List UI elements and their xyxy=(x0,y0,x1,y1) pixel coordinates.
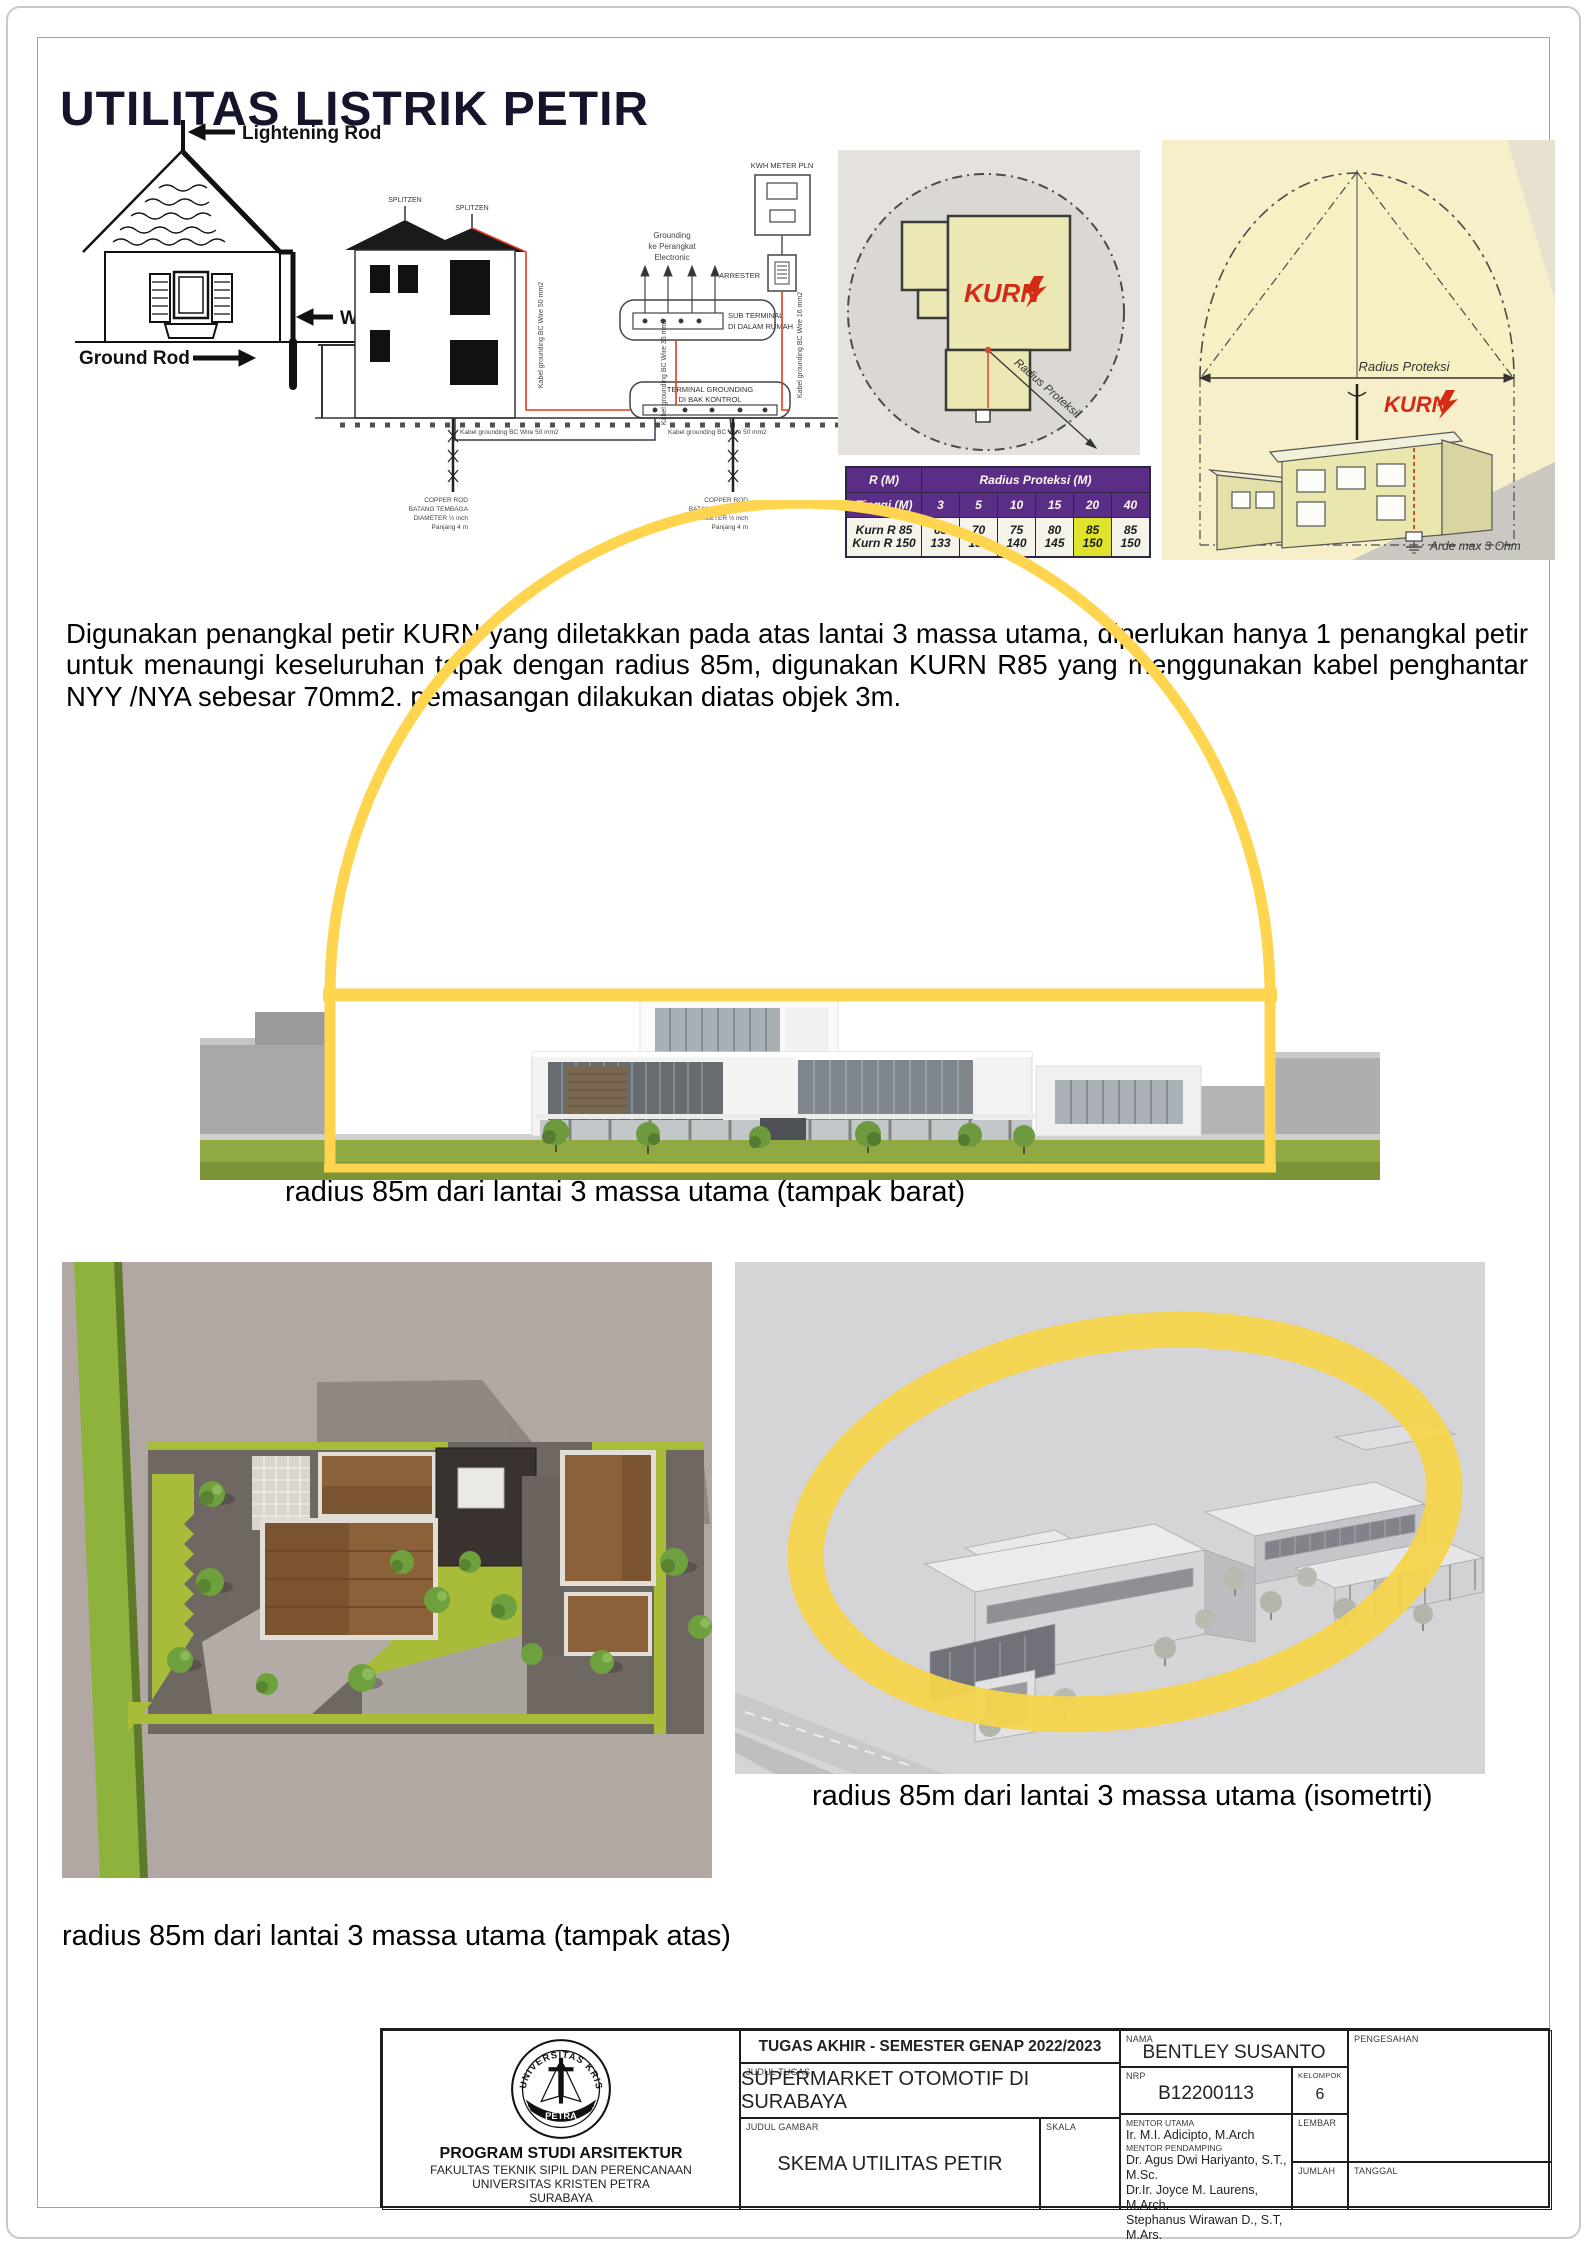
mentor-pendamping-label: MENTOR PENDAMPING xyxy=(1126,2143,1287,2153)
tanggal-cell: TANGGAL xyxy=(1348,2162,1552,2210)
nrp-label: NRP xyxy=(1126,2071,1146,2081)
table-radius-header: Radius Proteksi (M) xyxy=(922,468,1149,492)
kwh-meter xyxy=(755,175,810,235)
nama-cell: NAMA BENTLEY SUSANTO xyxy=(1120,2030,1348,2067)
presentation-board: UTILITAS LISTRIK PETIR xyxy=(0,0,1587,2245)
main-roof-building xyxy=(260,1518,438,1640)
kelompok-label: KELOMPOK xyxy=(1298,2071,1342,2080)
grounding-electronic-2: ke Perangkat xyxy=(648,242,696,251)
radius-side-diagram: Radius Proteksi KURN xyxy=(1162,140,1555,560)
jumlah-label: JUMLAH xyxy=(1298,2166,1335,2176)
caption-west-elevation: radius 85m dari lantai 3 massa utama (ta… xyxy=(285,1176,965,1209)
dark-flat-roof-mass xyxy=(436,1448,536,1566)
skala-cell: SKALA xyxy=(1040,2118,1120,2210)
university-logo: UNIVERSITAS KRISTEN PETRA xyxy=(509,2037,613,2141)
site-top-view-render xyxy=(62,1262,712,1878)
pengesahan-cell: PENGESAHAN xyxy=(1348,2030,1552,2162)
universitas: UNIVERSITAS KRISTEN PETRA xyxy=(472,2177,650,2191)
grass-strip xyxy=(200,1134,1380,1180)
skala-label: SKALA xyxy=(1046,2122,1076,2132)
titleblock-header-cell: TUGAS AKHIR - SEMESTER GENAP 2022/2023 xyxy=(740,2030,1120,2063)
table-r-header: R (M) xyxy=(847,468,921,492)
grounding-electronic-3: Electronic xyxy=(654,253,689,262)
main-building-elevation xyxy=(532,994,1201,1140)
radius-plan-diagram: KURN Radius Proteksi xyxy=(838,150,1140,455)
mentor-pendamping-name: Dr. Agus Dwi Hariyanto, S.T., M.Sc. xyxy=(1126,2153,1287,2183)
radius-proteksi-label-side: Radius Proteksi xyxy=(1358,359,1450,374)
arrester xyxy=(768,235,796,291)
title-block: UNIVERSITAS KRISTEN PETRA PROGRAM STUDI … xyxy=(380,2028,1550,2208)
cable-rod-right-label: Kabel grounding BC Wire 50 mm2 xyxy=(668,429,767,436)
jumlah-cell: JUMLAH xyxy=(1292,2162,1348,2210)
sub-terminal-label-2: DI DALAM RUMAH xyxy=(728,322,793,331)
fakultas: FAKULTAS TEKNIK SIPIL DAN PERENCANAAN xyxy=(430,2163,692,2177)
nama-label: NAMA xyxy=(1126,2034,1153,2044)
grounding-electronic-1: Grounding xyxy=(653,231,690,240)
pengesahan-label: PENGESAHAN xyxy=(1354,2034,1419,2044)
splitzen-right-label: SPLITZEN xyxy=(455,205,488,212)
mentor-pendamping-name: Stephanus Wirawan D., S.T, M.Ars. xyxy=(1126,2213,1287,2243)
tanggal-label: TANGGAL xyxy=(1354,2166,1398,2176)
kota: SURABAYA xyxy=(529,2191,593,2205)
right-roof-buildings xyxy=(522,1450,656,1656)
judul-tugas-label: JUDUL TUGAS xyxy=(746,2067,810,2077)
kelompok-cell: KELOMPOK 6 xyxy=(1292,2067,1348,2114)
ground-rod-label: Ground Rod xyxy=(79,348,190,369)
lembar-cell: LEMBAR xyxy=(1292,2114,1348,2162)
sub-terminal-label-1: SUB TERMINAL xyxy=(728,311,783,320)
lembar-label: LEMBAR xyxy=(1298,2118,1336,2128)
west-elevation-radius-view xyxy=(200,500,1380,1180)
mentor-pendamping-name: Dr.Ir. Joyce M. Laurens, M.Arch. xyxy=(1126,2183,1287,2213)
mentor-cell: MENTOR UTAMA Ir. M.I. Adicipto, M.Arch M… xyxy=(1120,2114,1292,2210)
window xyxy=(150,272,232,338)
kwh-label: KWH METER PLN xyxy=(751,161,814,170)
program-studi: PROGRAM STUDI ARSITEKTUR xyxy=(440,2145,683,2163)
titleblock-header: TUGAS AKHIR - SEMESTER GENAP 2022/2023 xyxy=(741,2031,1119,2062)
mentor-utama-name: Ir. M.I. Adicipto, M.Arch xyxy=(1126,2128,1287,2143)
judul-gambar-cell: JUDUL GAMBAR SKEMA UTILITAS PETIR xyxy=(740,2118,1040,2210)
nrp-cell: NRP B12200113 xyxy=(1120,2067,1292,2114)
terminal-label-1: TERMINAL GROUNDING xyxy=(667,385,754,394)
cable-rod-left-label: Kabel grounding BC Wire 50 mm2 xyxy=(460,429,559,436)
mentor-utama-label: MENTOR UTAMA xyxy=(1126,2118,1287,2128)
caption-isometric: radius 85m dari lantai 3 massa utama (is… xyxy=(812,1780,1433,1813)
upper-roof-building xyxy=(318,1452,436,1518)
isometric-render xyxy=(735,1262,1485,1774)
judul-gambar-label: JUDUL GAMBAR xyxy=(746,2122,819,2132)
cable-house-label: Kabel grounding BC Wire 50 mm2 xyxy=(538,282,545,388)
institution-cell: UNIVERSITAS KRISTEN PETRA PROGRAM STUDI … xyxy=(382,2030,740,2210)
cable-arrester-label: Kabel grounding BC Wire 16 mm2 xyxy=(797,292,804,398)
caption-top-view: radius 85m dari lantai 3 massa utama (ta… xyxy=(62,1920,731,1953)
splitzen-left-label: SPLITZEN xyxy=(388,197,421,204)
grounding-schematic-diagram: SPLITZEN SPLITZEN KWH METER PLN ARRESTER xyxy=(300,150,855,550)
terminal-label-2: DI BAK KONTROL xyxy=(679,395,742,404)
judul-gambar-value: SKEMA UTILITAS PETIR xyxy=(741,2119,1039,2209)
arde-label: Arde max 3 Ohm xyxy=(1429,539,1521,553)
nrp-value: B12200113 xyxy=(1121,2068,1291,2113)
nama-value: BENTLEY SUSANTO xyxy=(1121,2031,1347,2066)
judul-tugas-cell: JUDUL TUGAS SUPERMARKET OTOMOTIF DI SURA… xyxy=(740,2063,1120,2118)
arrester-label: ARRESTER xyxy=(719,271,760,280)
logo-bottom-text: PETRA xyxy=(545,2111,577,2121)
rod-label: Lightening Rod xyxy=(242,123,381,144)
ground-line xyxy=(315,418,845,425)
cable-sub-label: Kabel grounding BC Wire 35 mm2 xyxy=(661,319,668,425)
